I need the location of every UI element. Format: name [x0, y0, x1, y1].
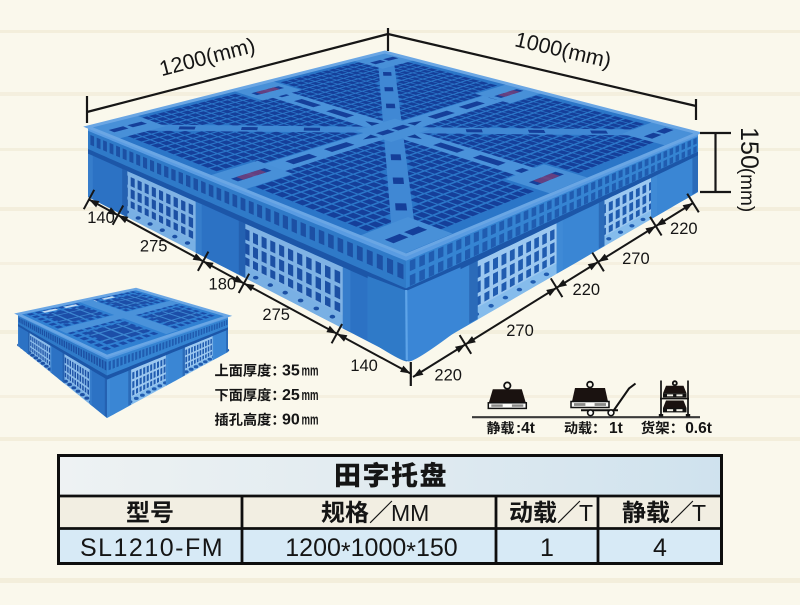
- svg-text:25: 25: [282, 387, 300, 404]
- svg-text:1t: 1t: [609, 420, 623, 437]
- svg-text:220: 220: [434, 367, 462, 385]
- svg-text:T: T: [579, 500, 593, 526]
- svg-text:mm: mm: [302, 387, 319, 404]
- svg-text:mm: mm: [302, 412, 319, 429]
- svg-text:140: 140: [350, 357, 378, 375]
- svg-text:180: 180: [209, 276, 237, 294]
- svg-text:4: 4: [653, 534, 667, 562]
- svg-text:35: 35: [282, 363, 300, 380]
- svg-text:MM: MM: [391, 500, 429, 526]
- svg-text:220: 220: [670, 220, 698, 238]
- svg-text:0.6t: 0.6t: [685, 420, 712, 437]
- svg-text:T: T: [692, 500, 706, 526]
- svg-text:SL1210-FM: SL1210-FM: [80, 534, 224, 562]
- svg-text:1200*1000*150: 1200*1000*150: [285, 534, 457, 566]
- svg-text:275: 275: [262, 306, 290, 324]
- svg-text:mm: mm: [302, 363, 319, 380]
- svg-text:270: 270: [622, 250, 650, 268]
- svg-text:150: 150: [735, 127, 763, 169]
- svg-text:220: 220: [573, 281, 601, 299]
- svg-text:275: 275: [140, 237, 168, 255]
- svg-text:(mm): (mm): [736, 168, 757, 212]
- svg-text:90: 90: [282, 412, 300, 429]
- svg-text:270: 270: [506, 322, 534, 340]
- svg-text::4t: :4t: [516, 420, 535, 437]
- svg-text:1: 1: [540, 534, 554, 562]
